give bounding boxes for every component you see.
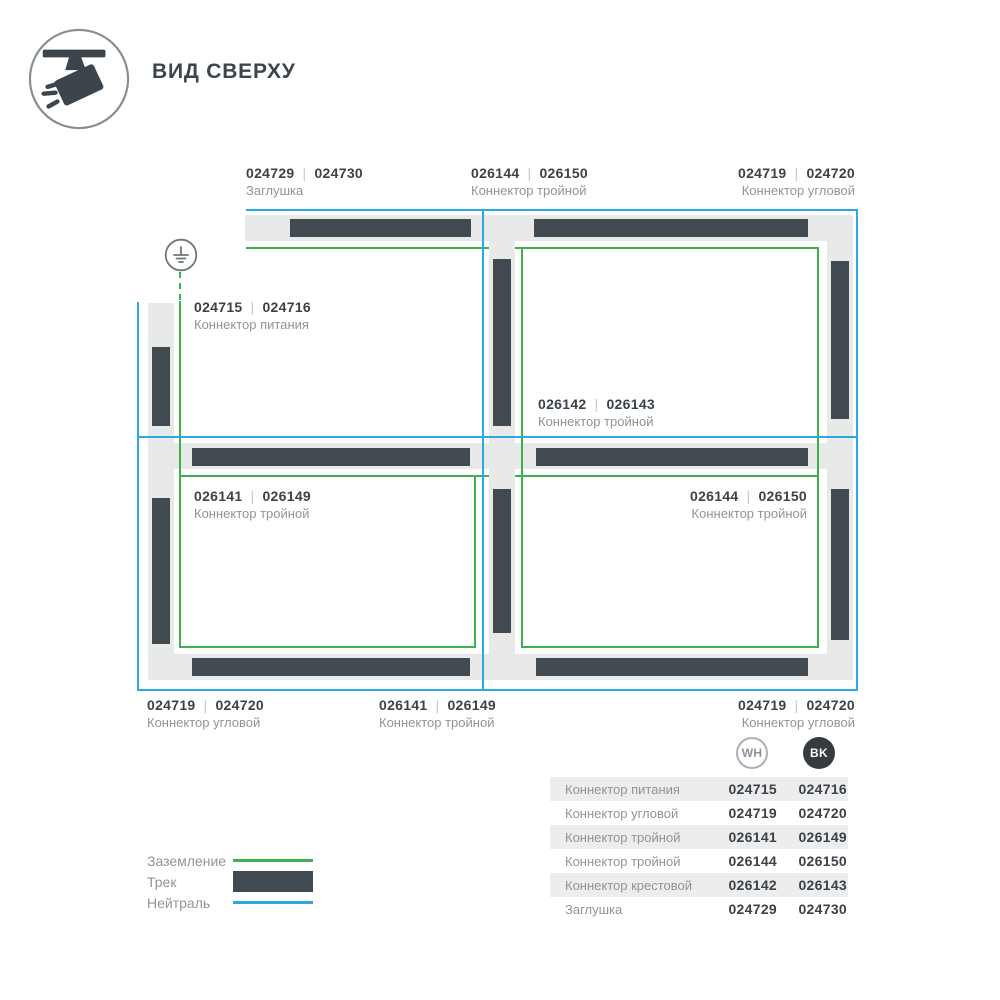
- ground-feed-dashed-line: [179, 272, 181, 302]
- track-segment-top-right: [534, 219, 808, 237]
- page: ВИД СВЕРХУ: [0, 0, 1000, 1000]
- code-wh: 024715: [707, 781, 777, 797]
- track-bar-swatch: [233, 871, 313, 892]
- code-separator: |: [428, 697, 448, 713]
- part-codes: 026144|026150: [471, 166, 588, 180]
- track-light-icon: [28, 28, 130, 130]
- code-separator: |: [243, 488, 263, 504]
- ground-line-left: [179, 301, 181, 648]
- ground-line-top: [246, 247, 819, 249]
- part-codes: 026141|026149: [194, 489, 311, 503]
- code-bk: 024730: [777, 901, 847, 917]
- track-segment-center-upper: [493, 259, 511, 426]
- part-codes: 024715|024716: [194, 300, 311, 314]
- track-segment-middle-right: [536, 448, 808, 466]
- legend: Заземление Трек Нейтраль: [147, 850, 313, 913]
- neutral-line-center: [482, 209, 484, 691]
- code-separator: |: [243, 299, 263, 315]
- code-separator: |: [295, 165, 315, 181]
- code-separator: |: [739, 488, 759, 504]
- code-wh: 024719: [738, 697, 787, 713]
- table-row: Коннектор тройной 026144 026150: [550, 849, 848, 873]
- code-bk: 024716: [262, 299, 311, 315]
- code-separator: |: [520, 165, 540, 181]
- code-wh: 026141: [194, 488, 243, 504]
- track-segment-top-left: [290, 219, 471, 237]
- code-wh: 024715: [194, 299, 243, 315]
- table-row: Коннектор питания 024715 024716: [550, 777, 848, 801]
- part-name: Коннектор тройной: [538, 415, 655, 428]
- label-center-connector: 026142|026143 Коннектор тройной: [538, 397, 655, 428]
- code-wh: 026142: [707, 877, 777, 893]
- code-wh: 024729: [246, 165, 295, 181]
- table-row: Заглушка 024729 024730: [550, 897, 848, 921]
- table-row: Коннектор тройной 026141 026149: [550, 825, 848, 849]
- code-wh: 024719: [738, 165, 787, 181]
- label-t-connector-left: 026141|026149 Коннектор тройной: [194, 489, 311, 520]
- code-bk: 024720: [806, 697, 855, 713]
- code-wh: 024729: [707, 901, 777, 917]
- ground-line-center-right: [521, 247, 523, 648]
- label-t-connector-bottom: 026141|026149 Коннектор тройной: [379, 698, 496, 729]
- track-segment-bottom-right: [536, 658, 808, 676]
- neutral-line-right: [856, 209, 858, 691]
- legend-row-ground: Заземление: [147, 850, 313, 871]
- color-badge-white: WH: [736, 737, 768, 769]
- code-bk: 026150: [539, 165, 588, 181]
- green-line-swatch: [233, 859, 313, 862]
- ground-line-bottom-left: [179, 646, 476, 648]
- legend-label: Нейтраль: [147, 895, 233, 911]
- part-codes: 026141|026149: [379, 698, 496, 712]
- code-wh: 024719: [147, 697, 196, 713]
- neutral-line-bottom: [137, 689, 858, 691]
- part-name: Заглушка: [246, 184, 363, 197]
- label-t-connector-right: 026144|026150 Коннектор тройной: [690, 489, 807, 520]
- code-bk: 024720: [215, 697, 264, 713]
- track-segment-right-upper: [831, 261, 849, 419]
- label-corner-connector-bottom-left: 024719|024720 Коннектор угловой: [147, 698, 264, 729]
- code-bk: 026149: [262, 488, 311, 504]
- legend-row-track: Трек: [147, 871, 313, 892]
- legend-label: Заземление: [147, 853, 233, 869]
- part-name: Коннектор угловой: [147, 716, 264, 729]
- ground-line-right: [817, 247, 819, 648]
- code-wh: 026144: [690, 488, 739, 504]
- code-separator: |: [787, 165, 807, 181]
- ground-line-bottom-right: [521, 646, 819, 648]
- code-bk: 026143: [606, 396, 655, 412]
- label-corner-connector-bottom-right: 024719|024720 Коннектор угловой: [738, 698, 855, 729]
- ground-line-center-left: [474, 475, 476, 648]
- part-name: Коннектор тройной: [550, 854, 707, 869]
- code-wh: 026141: [379, 697, 428, 713]
- part-codes: 026144|026150: [690, 489, 807, 503]
- part-codes: 024719|024720: [147, 698, 264, 712]
- code-wh: 026144: [707, 853, 777, 869]
- part-name: Коннектор питания: [550, 782, 707, 797]
- part-name: Коннектор тройной: [471, 184, 588, 197]
- neutral-line-top: [246, 209, 858, 211]
- code-bk: 024730: [314, 165, 363, 181]
- neutral-line-middle: [137, 436, 858, 438]
- part-codes: 024729|024730: [246, 166, 363, 180]
- track-segment-middle-left: [192, 448, 470, 466]
- code-separator: |: [787, 697, 807, 713]
- code-separator: |: [196, 697, 216, 713]
- part-name: Коннектор тройной: [194, 507, 311, 520]
- code-bk: 024720: [806, 165, 855, 181]
- part-name: Коннектор питания: [194, 318, 311, 331]
- page-title: ВИД СВЕРХУ: [152, 60, 296, 84]
- track-segment-left-upper: [152, 347, 170, 426]
- track-segment-left-lower: [152, 498, 170, 644]
- code-wh: 026142: [538, 396, 587, 412]
- label-endcap: 024729|024730 Заглушка: [246, 166, 363, 197]
- table-row: Коннектор крестовой 026142 026143: [550, 873, 848, 897]
- label-power-connector: 024715|024716 Коннектор питания: [194, 300, 311, 331]
- code-wh: 026141: [707, 829, 777, 845]
- part-name: Заглушка: [550, 902, 707, 917]
- part-name: Коннектор тройной: [379, 716, 496, 729]
- label-corner-connector-top-right: 024719|024720 Коннектор угловой: [738, 166, 855, 197]
- part-name: Коннектор тройной: [550, 830, 707, 845]
- code-bk: 026150: [777, 853, 847, 869]
- code-bk: 026150: [758, 488, 807, 504]
- code-wh: 026144: [471, 165, 520, 181]
- code-separator: |: [587, 396, 607, 412]
- ground-symbol-icon: [164, 238, 198, 272]
- part-codes: 024719|024720: [738, 166, 855, 180]
- blue-line-swatch: [233, 901, 313, 904]
- table-row: Коннектор угловой 024719 024720: [550, 801, 848, 825]
- code-bk: 024716: [777, 781, 847, 797]
- track-segment-right-lower: [831, 489, 849, 640]
- code-wh: 024719: [707, 805, 777, 821]
- neutral-line-left: [137, 302, 139, 691]
- legend-label: Трек: [147, 874, 233, 890]
- code-bk: 024720: [777, 805, 847, 821]
- part-name: Коннектор угловой: [738, 184, 855, 197]
- part-name: Коннектор угловой: [550, 806, 707, 821]
- track-segment-center-lower: [493, 489, 511, 633]
- part-codes: 026142|026143: [538, 397, 655, 411]
- label-t-connector-top: 026144|026150 Коннектор тройной: [471, 166, 588, 197]
- code-bk: 026143: [777, 877, 847, 893]
- code-bk: 026149: [777, 829, 847, 845]
- code-bk: 026149: [447, 697, 496, 713]
- part-name: Коннектор угловой: [738, 716, 855, 729]
- parts-table: Коннектор питания 024715 024716 Коннекто…: [550, 777, 848, 921]
- part-name: Коннектор тройной: [690, 507, 807, 520]
- part-codes: 024719|024720: [738, 698, 855, 712]
- legend-row-neutral: Нейтраль: [147, 892, 313, 913]
- track-segment-bottom-left: [192, 658, 470, 676]
- color-badge-black: BK: [803, 737, 835, 769]
- part-name: Коннектор крестовой: [550, 878, 707, 893]
